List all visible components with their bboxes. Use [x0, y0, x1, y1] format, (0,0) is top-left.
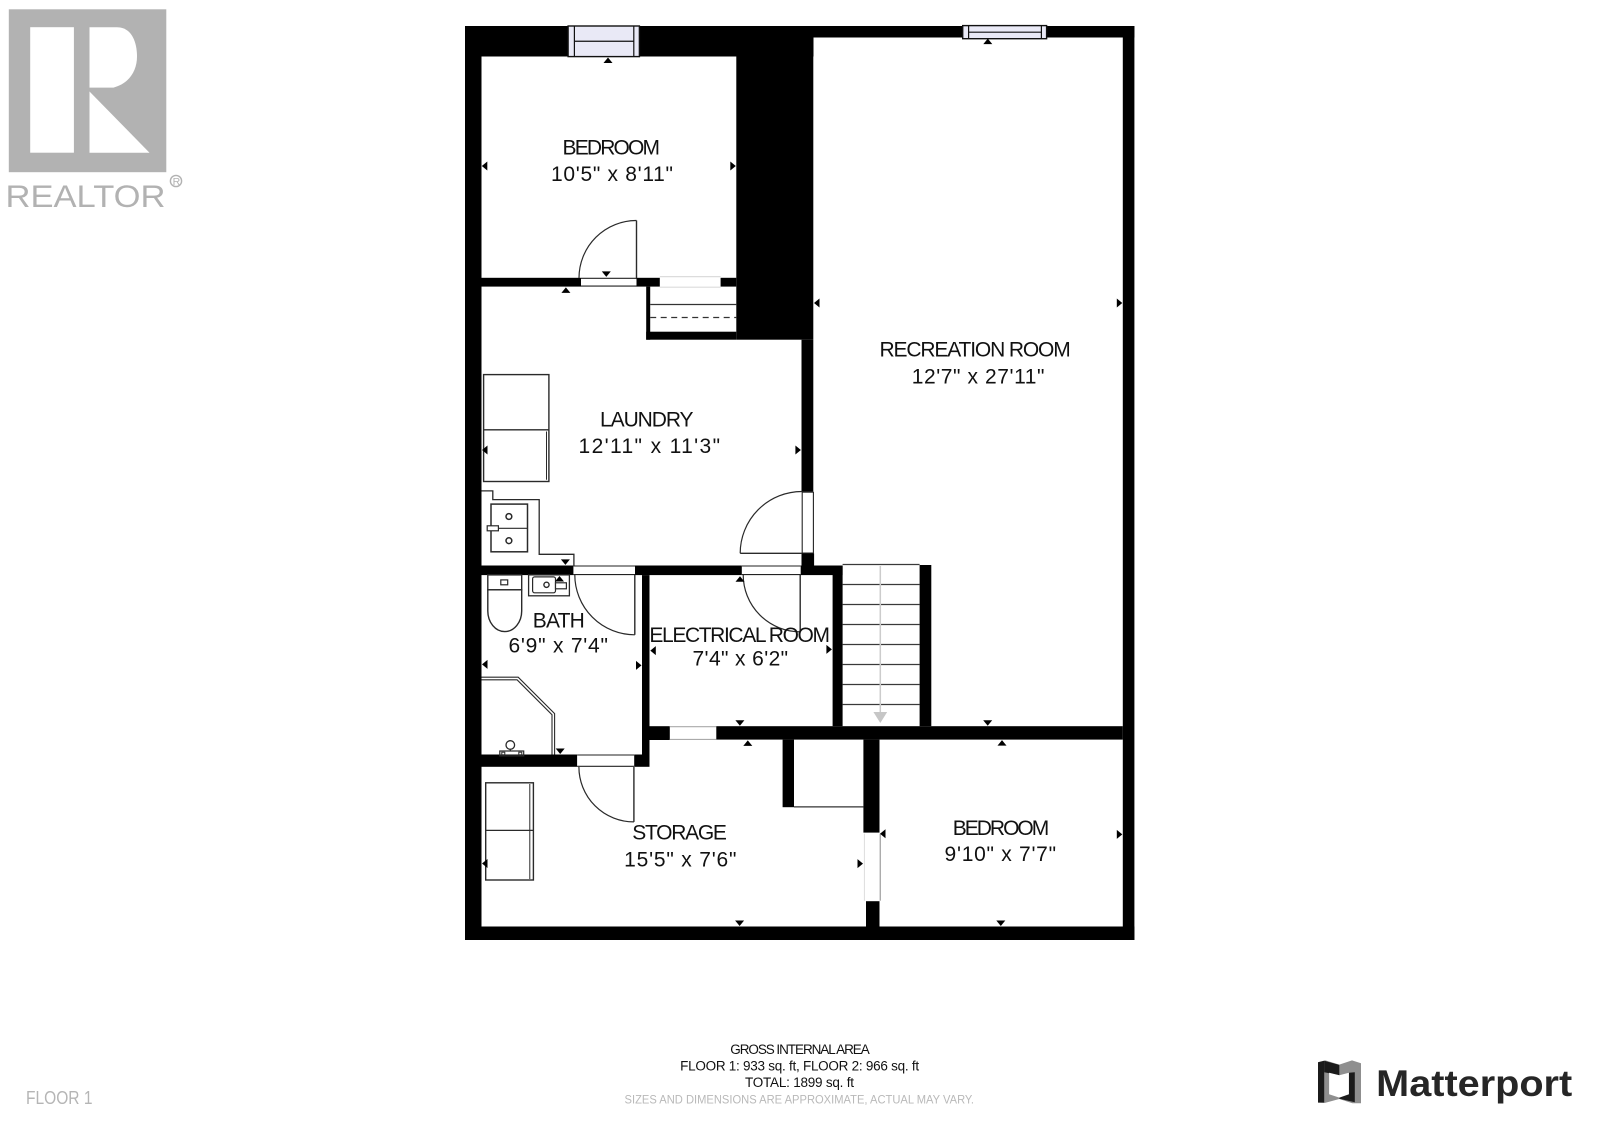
svg-text:FLOOR 1: FLOOR 1 — [26, 1088, 93, 1108]
svg-text:FLOOR 1: 933 sq. ft, FLOOR 2:: FLOOR 1: 933 sq. ft, FLOOR 2: 966 sq. ft — [680, 1058, 919, 1073]
svg-text:SIZES AND DIMENSIONS ARE APPRO: SIZES AND DIMENSIONS ARE APPROXIMATE, AC… — [625, 1093, 975, 1107]
svg-text:BEDROOM: BEDROOM — [953, 817, 1050, 840]
svg-text:RECREATION ROOM: RECREATION ROOM — [879, 338, 1070, 361]
svg-text:15'5" x 7'6": 15'5" x 7'6" — [624, 849, 736, 872]
svg-text:STORAGE: STORAGE — [632, 822, 727, 845]
svg-text:Matterport: Matterport — [1376, 1062, 1573, 1104]
svg-text:12'7" x 27'11": 12'7" x 27'11" — [912, 365, 1045, 388]
svg-text:6'9" x 7'4": 6'9" x 7'4" — [508, 635, 608, 658]
svg-text:7'4" x 6'2": 7'4" x 6'2" — [693, 648, 789, 671]
svg-text:TOTAL: 1899 sq. ft: TOTAL: 1899 sq. ft — [745, 1075, 854, 1090]
svg-text:GROSS INTERNAL AREA: GROSS INTERNAL AREA — [730, 1042, 870, 1057]
svg-text:BATH: BATH — [533, 609, 585, 632]
svg-text:R: R — [173, 176, 181, 188]
svg-text:BEDROOM: BEDROOM — [563, 137, 661, 160]
svg-text:10'5" x 8'11": 10'5" x 8'11" — [551, 163, 673, 186]
svg-text:ELECTRICAL ROOM: ELECTRICAL ROOM — [649, 624, 830, 647]
svg-text:9'10" x 7'7": 9'10" x 7'7" — [945, 843, 1057, 866]
svg-text:REALTOR: REALTOR — [6, 178, 166, 214]
svg-text:LAUNDRY: LAUNDRY — [600, 409, 694, 432]
